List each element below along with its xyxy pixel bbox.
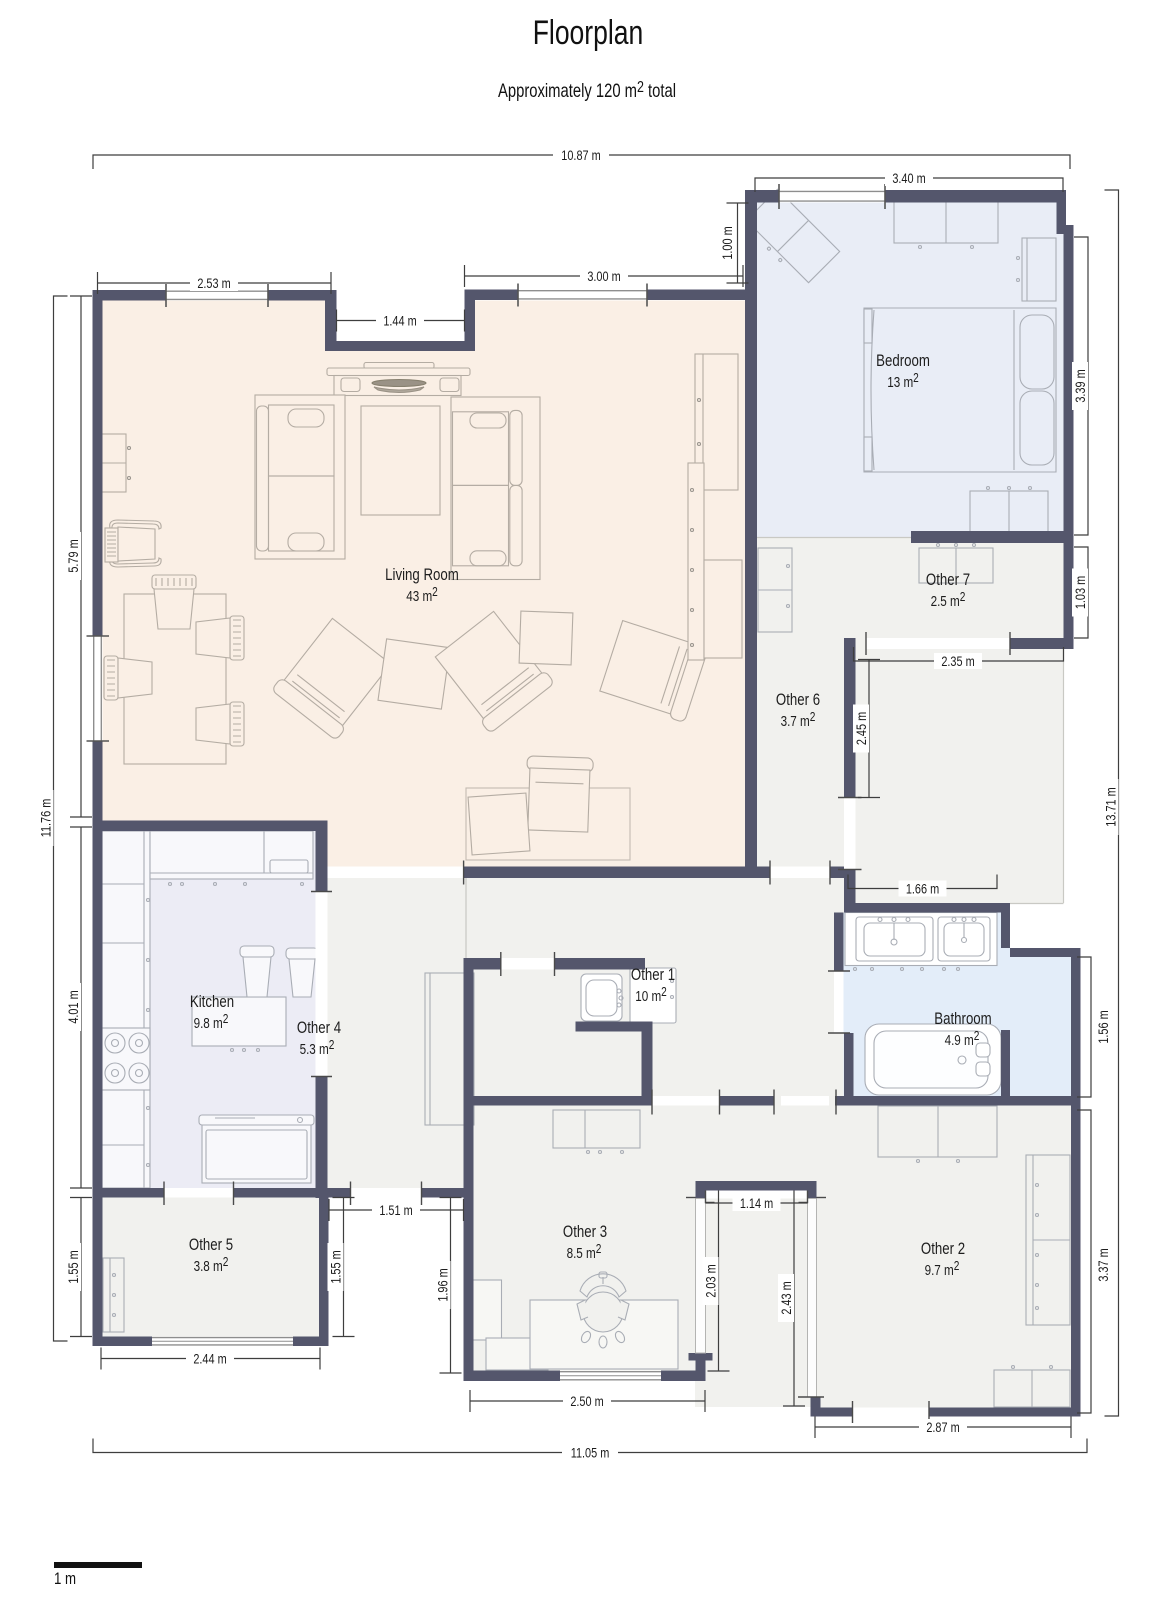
svg-text:4.01 m: 4.01 m	[66, 990, 82, 1023]
svg-text:2.53 m: 2.53 m	[197, 276, 230, 292]
svg-text:Bathroom: Bathroom	[934, 1010, 991, 1029]
svg-text:Floorplan: Floorplan	[533, 14, 644, 52]
svg-text:1 m: 1 m	[54, 1570, 76, 1589]
svg-text:1.03 m: 1.03 m	[1073, 576, 1089, 609]
svg-text:2.45 m: 2.45 m	[854, 712, 870, 745]
svg-text:1.96 m: 1.96 m	[435, 1268, 451, 1301]
svg-text:11.76 m: 11.76 m	[38, 799, 54, 838]
svg-text:Other 1: Other 1	[631, 966, 675, 985]
svg-text:Bedroom: Bedroom	[876, 352, 930, 371]
svg-text:2.87 m: 2.87 m	[926, 1420, 959, 1436]
svg-text:1.51 m: 1.51 m	[379, 1203, 412, 1219]
svg-text:1.55 m: 1.55 m	[328, 1250, 344, 1283]
svg-text:Living Room: Living Room	[385, 566, 459, 585]
svg-text:10.87 m: 10.87 m	[561, 148, 600, 164]
svg-text:Approximately 120 m2 total: Approximately 120 m2 total	[498, 79, 676, 102]
svg-text:3.39 m: 3.39 m	[1073, 369, 1089, 402]
svg-text:Other 3: Other 3	[563, 1223, 607, 1242]
svg-text:1.44 m: 1.44 m	[383, 313, 416, 329]
svg-text:1.14 m: 1.14 m	[740, 1196, 773, 1212]
svg-text:Kitchen: Kitchen	[190, 993, 234, 1012]
svg-text:2.50 m: 2.50 m	[570, 1394, 603, 1410]
svg-text:5.79 m: 5.79 m	[66, 539, 82, 572]
svg-text:Other 5: Other 5	[189, 1236, 233, 1255]
svg-text:3.37 m: 3.37 m	[1096, 1248, 1112, 1281]
svg-text:11.05 m: 11.05 m	[571, 1445, 610, 1461]
svg-text:2.44 m: 2.44 m	[193, 1351, 226, 1367]
svg-text:2.43 m: 2.43 m	[779, 1281, 795, 1314]
svg-text:Other 7: Other 7	[926, 571, 970, 590]
svg-text:1.55 m: 1.55 m	[66, 1250, 82, 1283]
svg-text:1.00 m: 1.00 m	[720, 226, 736, 259]
svg-text:13.71 m: 13.71 m	[1103, 787, 1119, 826]
svg-text:3.40 m: 3.40 m	[892, 171, 925, 187]
svg-text:Other 2: Other 2	[921, 1240, 965, 1259]
svg-text:Other 4: Other 4	[297, 1019, 342, 1038]
svg-text:1.66 m: 1.66 m	[906, 881, 939, 897]
svg-text:2.35 m: 2.35 m	[941, 654, 974, 670]
svg-text:Other 6: Other 6	[776, 691, 820, 710]
svg-text:3.00 m: 3.00 m	[587, 269, 620, 285]
svg-text:1.56 m: 1.56 m	[1096, 1010, 1112, 1043]
svg-text:2.03 m: 2.03 m	[703, 1264, 719, 1297]
